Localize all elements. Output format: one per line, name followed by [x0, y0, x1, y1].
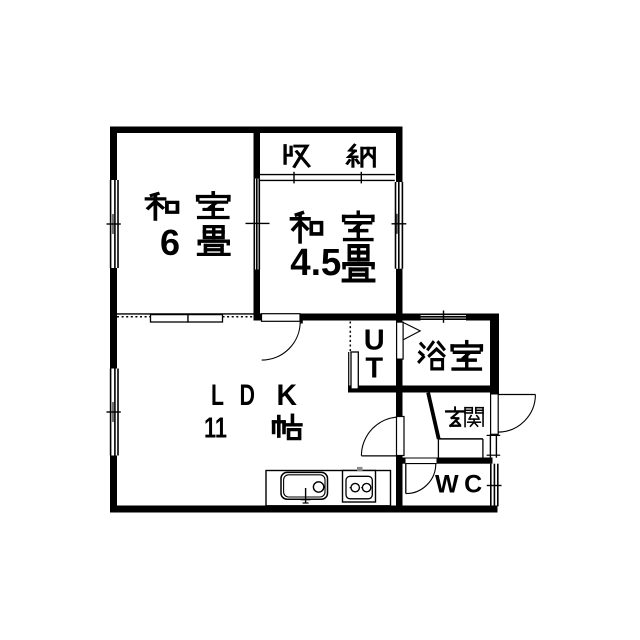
svg-text:6: 6: [160, 222, 180, 263]
svg-text:K: K: [277, 379, 298, 412]
svg-text:4.5: 4.5: [290, 242, 341, 284]
svg-text:T: T: [365, 353, 383, 385]
svg-text:U: U: [364, 324, 385, 356]
svg-text:D: D: [240, 379, 256, 412]
svg-text:L: L: [211, 379, 224, 412]
svg-text:11: 11: [204, 412, 227, 444]
svg-text:WC: WC: [435, 471, 488, 499]
